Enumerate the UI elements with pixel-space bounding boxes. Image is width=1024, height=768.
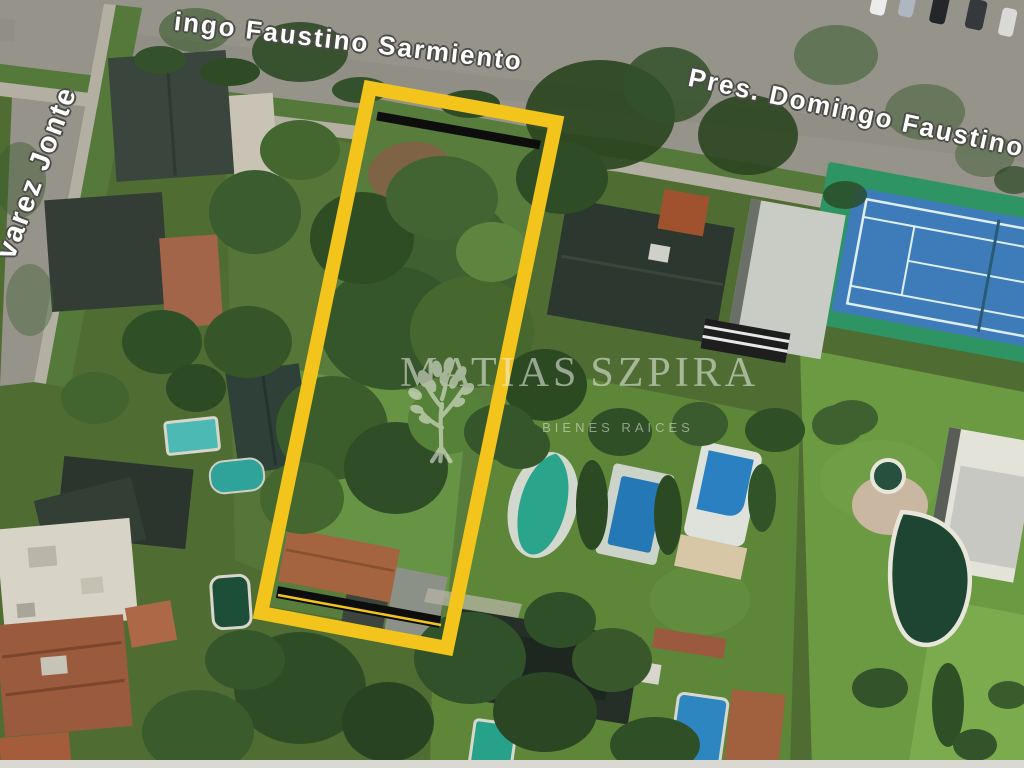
- patio-terracotta-bottom: [724, 689, 785, 766]
- rooftop-unit: [28, 545, 58, 567]
- pool-covered-left: [208, 457, 265, 494]
- pool-water: [165, 417, 220, 454]
- skylight: [40, 655, 67, 675]
- roof-dark: [44, 192, 170, 312]
- pool-water: [208, 457, 265, 494]
- patio-red-tile: [657, 189, 709, 236]
- spa-round: [872, 460, 904, 492]
- house-small-red: [125, 600, 177, 647]
- house-terracotta-big: [0, 614, 133, 737]
- rooftop-unit: [648, 243, 670, 262]
- pool-turquoise-left: [165, 417, 220, 454]
- bottom-edge-strip: [0, 760, 1024, 768]
- satellite-listing-image: ingo Faustino Sarmiento Pres. Domingo Fa…: [0, 0, 1024, 768]
- pool-green-left: [210, 575, 252, 630]
- rooftop-unit: [16, 603, 35, 619]
- rooftop-unit: [80, 576, 103, 594]
- roof-terracotta: [0, 614, 133, 737]
- building-white-flat: [0, 518, 138, 631]
